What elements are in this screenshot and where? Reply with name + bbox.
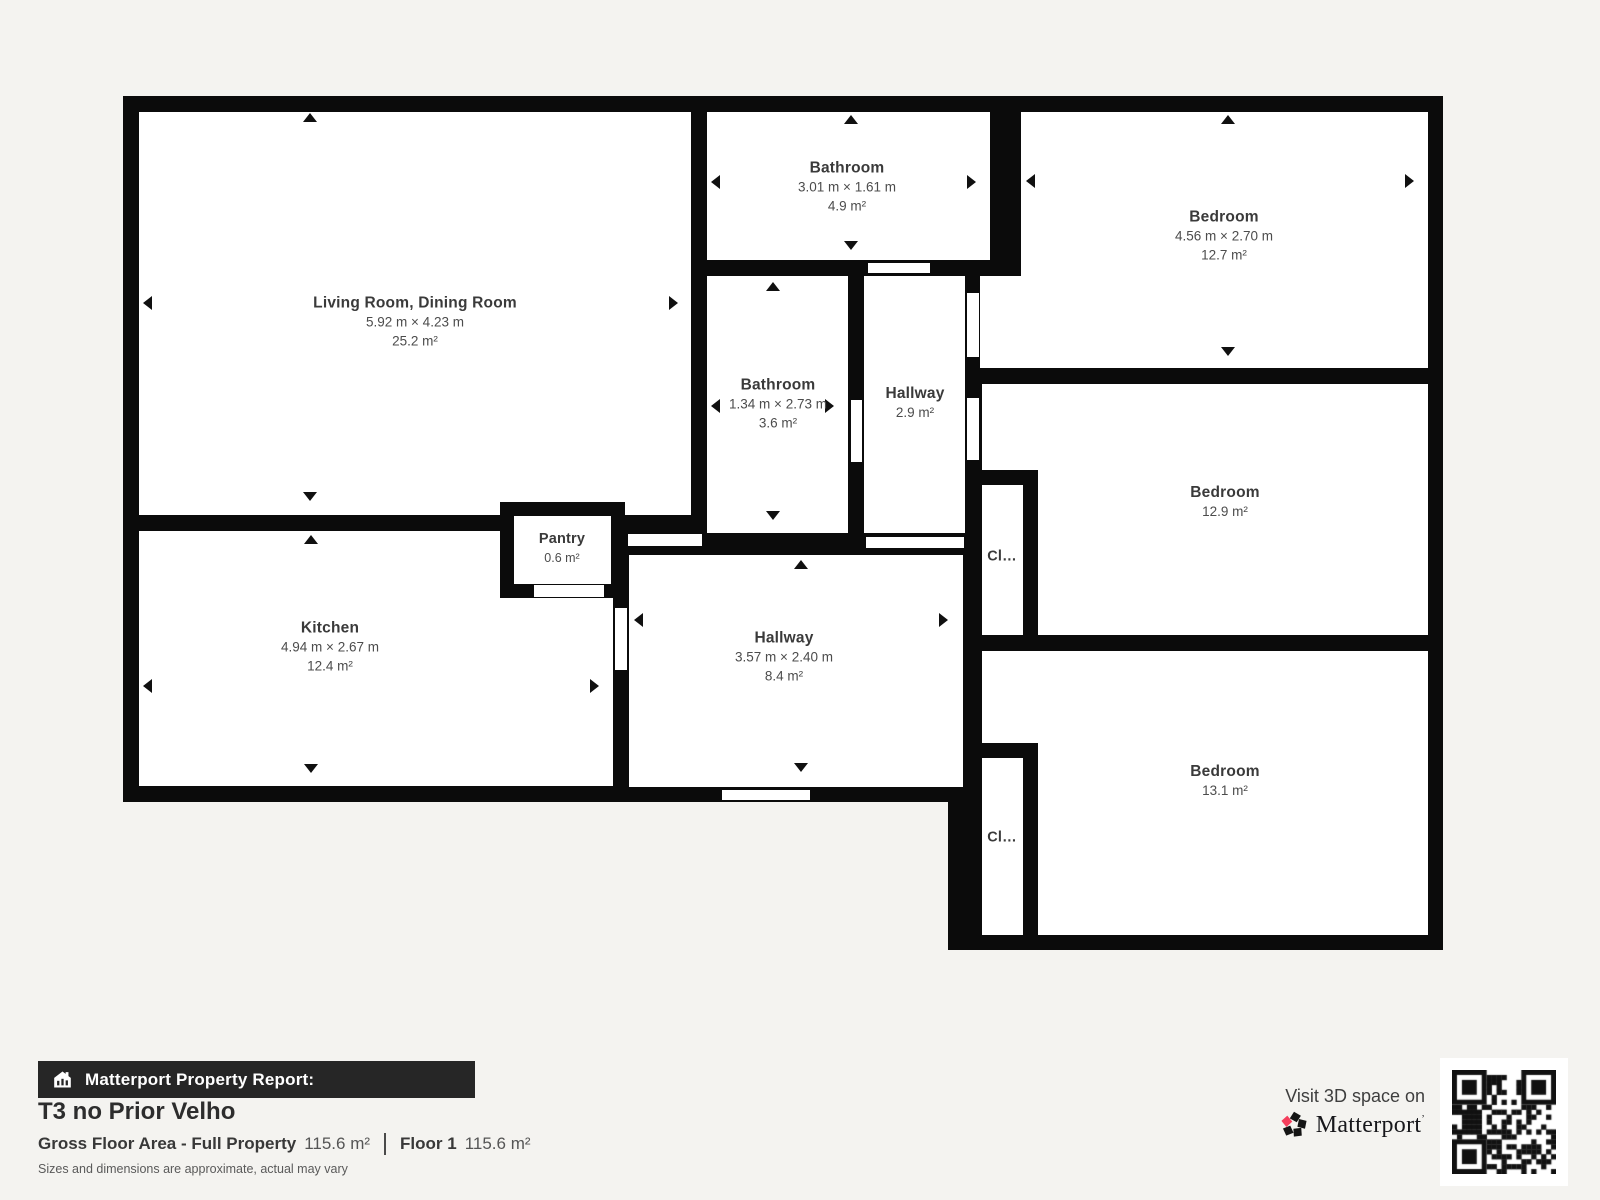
trademark-mark: ʼ [1421, 1114, 1425, 1125]
visit-3d-text: Visit 3D space on [1285, 1086, 1425, 1106]
room-name: Cl… [987, 829, 1017, 848]
floor-area-info: Gross Floor Area - Full Property 115.6 m… [38, 1133, 531, 1155]
floor-value: 115.6 m² [465, 1134, 531, 1154]
dimension-arrow-right [590, 679, 599, 693]
room-label-pantry: Pantry 0.6 m² [539, 530, 585, 568]
room-area: 8.4 m² [735, 667, 833, 686]
dimension-arrow-up [1221, 115, 1235, 124]
divider [384, 1133, 386, 1155]
closet1-right-wall [1023, 470, 1038, 635]
door-hallway-top [628, 534, 702, 546]
report-bar-label: Matterport Property Report: [85, 1070, 314, 1090]
dimension-arrow-left [1026, 174, 1035, 188]
house-chart-icon [52, 1069, 73, 1090]
room-area: 25.2 m² [313, 332, 517, 351]
dimension-arrow-down [766, 511, 780, 520]
room-name: Bedroom [1175, 208, 1273, 227]
matterport-pinwheel-icon [1279, 1110, 1309, 1140]
dimension-arrow-left [634, 613, 643, 627]
dimension-arrow-up [794, 560, 808, 569]
door-hallway-small-bottom [866, 537, 964, 548]
room-dimensions: 4.94 m × 2.67 m [281, 638, 379, 657]
door-bathroom-middle [851, 400, 862, 462]
room-dimensions: 3.57 m × 2.40 m [735, 648, 833, 667]
dimension-arrow-down [794, 763, 808, 772]
room-label-kitchen: Kitchen 4.94 m × 2.67 m 12.4 m² [281, 619, 379, 676]
room-label-living-dining: Living Room, Dining Room 5.92 m × 4.23 m… [313, 294, 517, 351]
door-pantry [534, 585, 604, 597]
dimension-arrow-right [967, 175, 976, 189]
matterport-logo: Matterportʼ [1100, 1110, 1425, 1140]
room-label-closet-2: Cl… [987, 829, 1017, 848]
gfa-label: Gross Floor Area - Full Property [38, 1134, 296, 1154]
matterport-wordmark: Matterportʼ [1316, 1112, 1425, 1139]
room-name: Bathroom [798, 159, 896, 178]
room-area: 2.9 m² [885, 403, 944, 422]
room-name: Hallway [735, 629, 833, 648]
floor-label: Floor 1 [400, 1134, 457, 1154]
room-label-hallway-central: Hallway 3.57 m × 2.40 m 8.4 m² [735, 629, 833, 686]
dimension-arrow-down [304, 764, 318, 773]
qr-card [1440, 1058, 1568, 1186]
room-dimensions: 1.34 m × 2.73 m [729, 395, 827, 414]
dimension-arrow-right [1405, 174, 1414, 188]
room-label-bedroom-bottom-right: Bedroom 13.1 m² [1190, 762, 1259, 800]
dimension-arrow-left [711, 175, 720, 189]
dimension-arrow-up [844, 115, 858, 124]
floorplan-page: Living Room, Dining Room 5.92 m × 4.23 m… [0, 0, 1600, 1200]
dimension-arrow-down [1221, 347, 1235, 356]
door-bedroom-middle [967, 398, 979, 460]
room-area: 12.4 m² [281, 657, 379, 676]
room-label-bathroom-middle: Bathroom 1.34 m × 2.73 m 3.6 m² [729, 376, 827, 433]
dimension-arrow-up [303, 113, 317, 122]
dimension-arrow-left [143, 296, 152, 310]
property-title: T3 no Prior Velho [38, 1098, 235, 1126]
door-bedroom-top-right [967, 293, 979, 357]
room-name: Cl… [987, 548, 1017, 567]
dimension-arrow-up [766, 282, 780, 291]
door-entrance [722, 790, 810, 800]
dimension-arrow-right [669, 296, 678, 310]
room-dimensions: 5.92 m × 4.23 m [313, 313, 517, 332]
closet2-right-wall [1023, 743, 1038, 935]
room-name: Bathroom [729, 376, 827, 395]
room-area: 12.7 m² [1175, 246, 1273, 265]
room-name: Kitchen [281, 619, 379, 638]
report-header-bar: Matterport Property Report: [38, 1061, 475, 1098]
room-name: Bedroom [1190, 762, 1259, 781]
room-label-closet-1: Cl… [987, 548, 1017, 567]
room-dimensions: 4.56 m × 2.70 m [1175, 227, 1273, 246]
dimension-arrow-left [711, 399, 720, 413]
room-name: Pantry [539, 530, 585, 549]
room-area: 0.6 m² [539, 549, 585, 568]
room-name: Hallway [885, 384, 944, 403]
room-name: Living Room, Dining Room [313, 294, 517, 313]
dimension-arrow-up [304, 535, 318, 544]
room-area: 13.1 m² [1190, 781, 1259, 800]
gfa-value: 115.6 m² [304, 1134, 370, 1154]
room-area: 3.6 m² [729, 414, 827, 433]
room-bedroom-top-right-ext [980, 276, 1021, 368]
dimension-arrow-down [844, 241, 858, 250]
room-label-bedroom-top-right: Bedroom 4.56 m × 2.70 m 12.7 m² [1175, 208, 1273, 265]
room-area: 12.9 m² [1190, 502, 1259, 521]
room-area: 4.9 m² [798, 197, 896, 216]
door-bathroom-top [868, 263, 930, 273]
dimension-arrow-right [939, 613, 948, 627]
room-label-hallway-small: Hallway 2.9 m² [885, 384, 944, 422]
room-dimensions: 3.01 m × 1.61 m [798, 178, 896, 197]
visit-3d-space: Visit 3D space on [1100, 1086, 1425, 1107]
dimension-arrow-left [143, 679, 152, 693]
room-name: Bedroom [1190, 483, 1259, 502]
room-label-bedroom-middle: Bedroom 12.9 m² [1190, 483, 1259, 521]
room-label-bathroom-top: Bathroom 3.01 m × 1.61 m 4.9 m² [798, 159, 896, 216]
qr-code [1452, 1070, 1556, 1174]
door-kitchen [615, 608, 627, 670]
dimension-arrow-down [303, 492, 317, 501]
disclaimer-text: Sizes and dimensions are approximate, ac… [38, 1162, 348, 1176]
